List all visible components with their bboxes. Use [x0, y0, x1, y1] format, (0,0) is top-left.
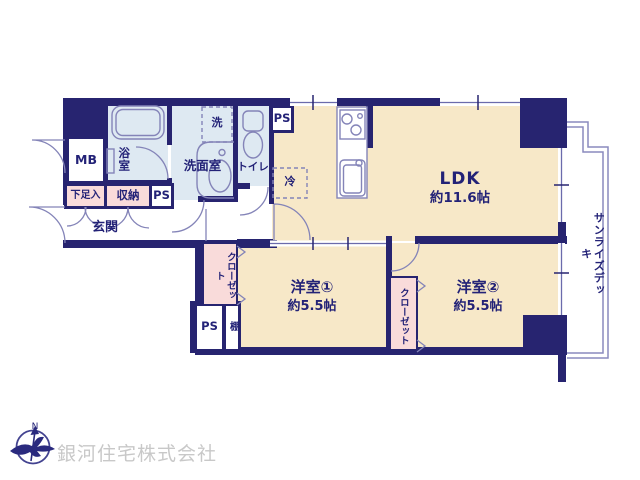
label-deck: サンライズデッキ [579, 209, 604, 299]
entrance-door-arc [29, 207, 65, 243]
label-ps-top: PS [272, 112, 292, 125]
room-label-bedroom1: 洋室① [252, 279, 372, 296]
label-bathroom: 浴室 [117, 147, 130, 172]
compass-north-label: N [29, 422, 41, 432]
label-closet2: クローゼット [397, 283, 408, 349]
mb-door-arc [32, 140, 65, 173]
label-shelf: 棚 [227, 321, 239, 332]
label-closet1: クローゼット [213, 248, 235, 304]
floorplan-drawing [0, 0, 640, 480]
label-shoe-storage: 下足入 [67, 190, 104, 202]
floorplan-page: LDK 約11.6帖 洋室① 約5.5帖 洋室② 約5.5帖 浴室 洗面室 トイ… [0, 0, 640, 480]
label-washer: 洗 [207, 117, 227, 130]
room-label-ldk: LDK [400, 170, 520, 190]
label-hall-closet: 収納 [107, 189, 149, 202]
label-ps-hall: PS [151, 189, 172, 202]
company-name: 銀河住宅株式会社 [57, 444, 217, 466]
toilet-floor [237, 104, 270, 186]
label-washroom: 洗面室 [171, 159, 234, 173]
room-size-bedroom2: 約5.5帖 [418, 300, 538, 315]
label-fridge: 冷 [280, 176, 300, 189]
room-size-bedroom1: 約5.5帖 [252, 300, 372, 315]
label-toilet: トイレ [236, 161, 270, 173]
room-size-ldk: 約11.6帖 [400, 191, 520, 207]
label-entrance: 玄関 [75, 221, 135, 236]
label-meter-box: MB [69, 153, 103, 167]
room-label-bedroom2: 洋室② [418, 279, 538, 296]
label-ps-bottom: PS [197, 320, 222, 333]
